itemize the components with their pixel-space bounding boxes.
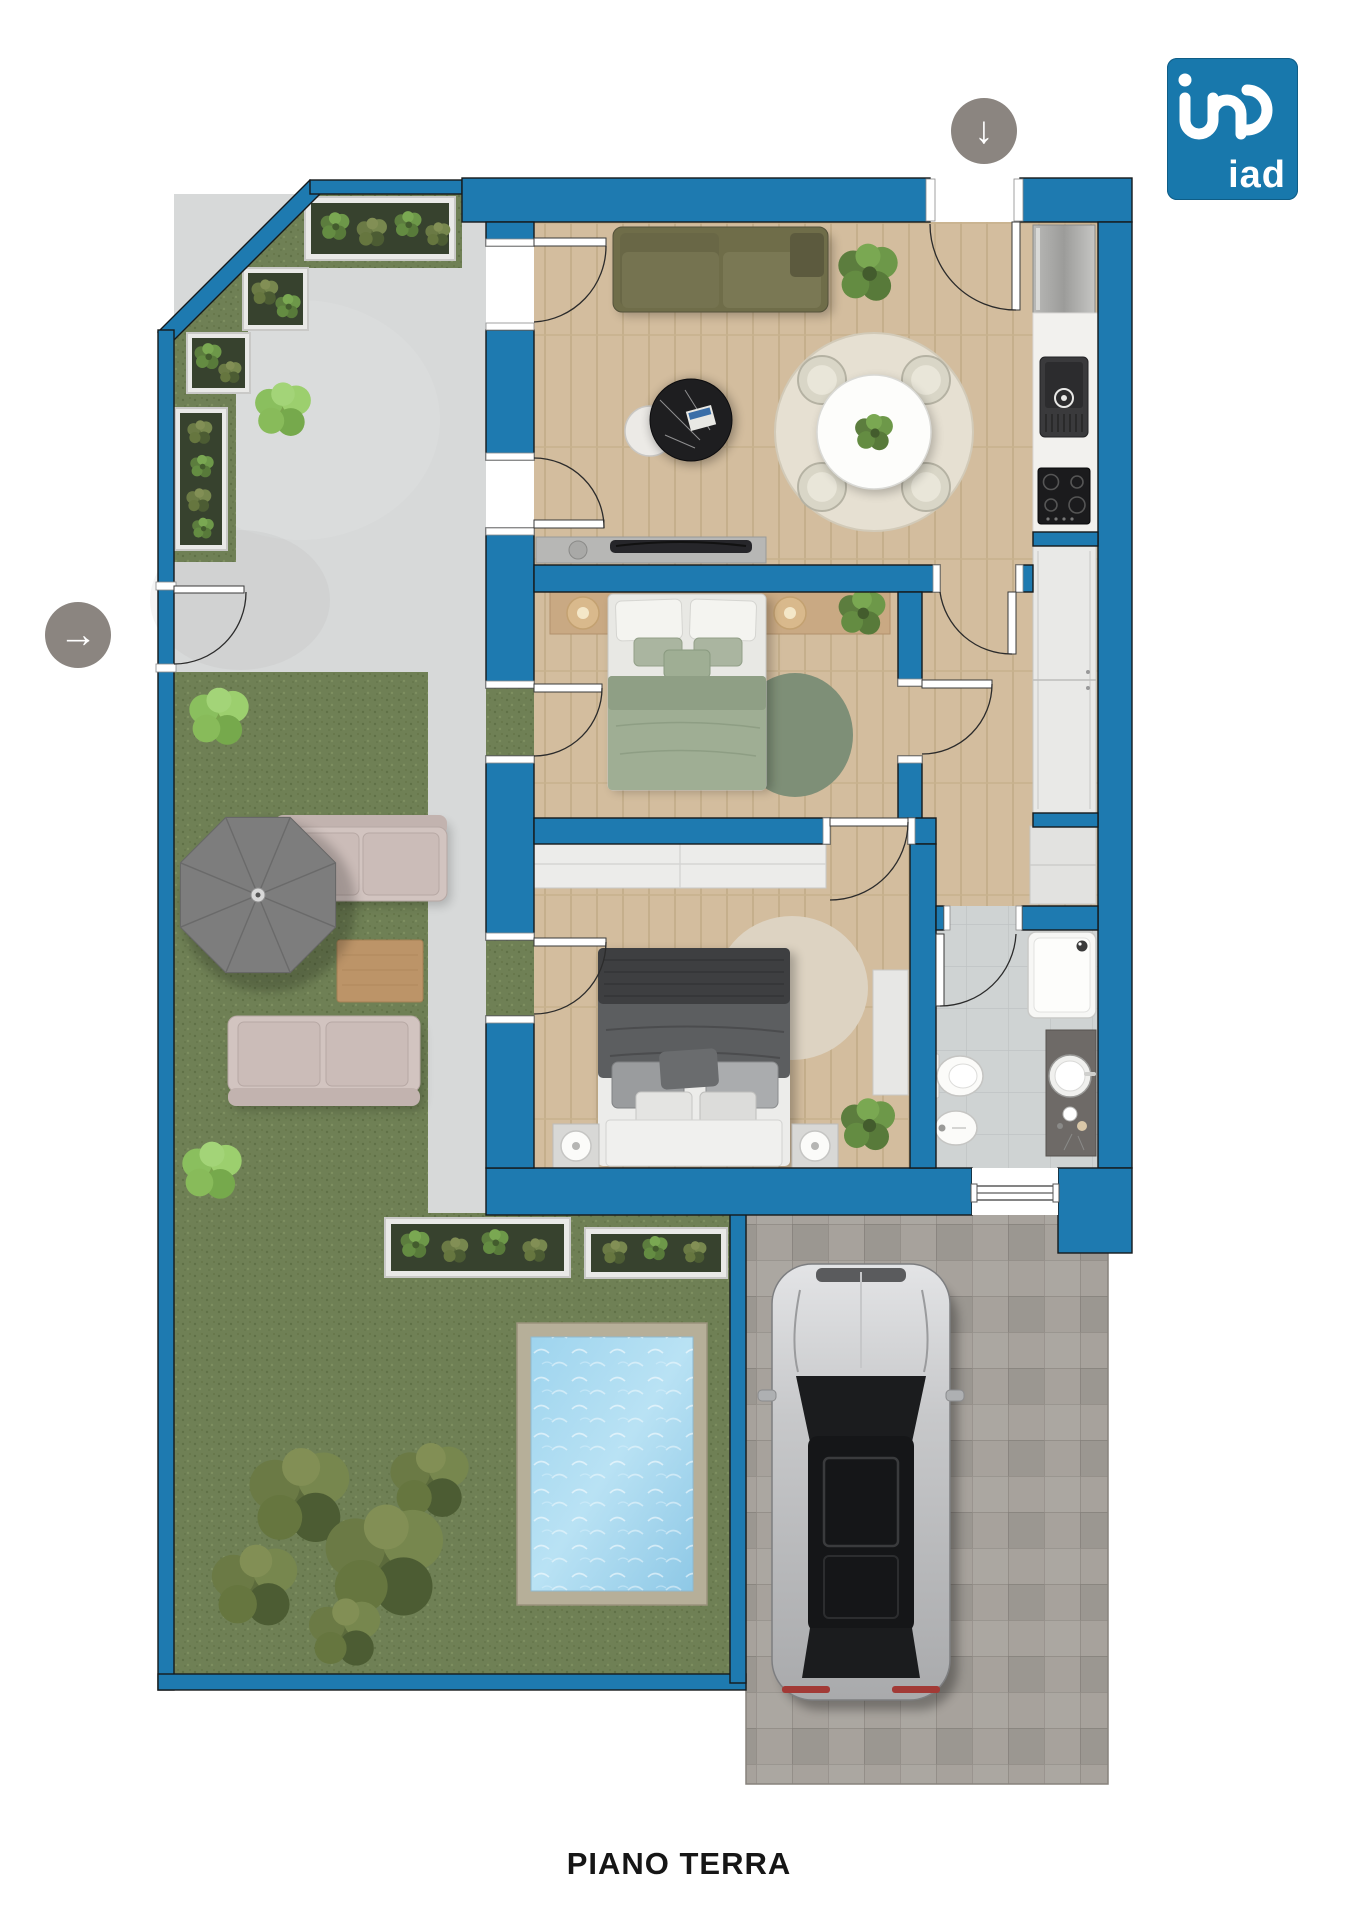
wall-right (1098, 222, 1132, 1168)
hallway (1030, 546, 1096, 904)
fridge (1033, 225, 1095, 313)
swimming-pool (517, 1323, 707, 1605)
wall-left-boundary (158, 330, 174, 1690)
floorplan-drawing (0, 0, 1358, 1920)
dining-set (775, 333, 973, 531)
planter-box-bottom-right (585, 1228, 727, 1278)
window-recess (971, 1168, 1059, 1215)
bedroom2-cabinet (873, 970, 908, 1095)
wall-bed2-north (534, 818, 830, 844)
car (758, 1264, 964, 1710)
shower (1028, 932, 1096, 1018)
garden-plant-1 (189, 688, 248, 745)
bedroom2-plant (841, 1098, 895, 1150)
planter-box-bottom-left (385, 1218, 570, 1277)
planter-box-2 (243, 268, 308, 330)
cooktop (1038, 468, 1090, 524)
table-plant (855, 414, 893, 450)
floorplan-page: iad ↓ → PIANO TERRA (0, 0, 1358, 1920)
wall-bath-west (910, 844, 936, 1168)
garden-plant-2 (182, 1142, 241, 1199)
wall-bed1-north (534, 565, 940, 592)
arrow-right-glyph: → (59, 616, 97, 654)
wall-bed1-east-a (898, 592, 922, 686)
coffee-table-black (650, 379, 736, 465)
patio-plant (255, 382, 311, 436)
outdoor-coffee-table (337, 940, 423, 1002)
tv-sideboard (536, 537, 766, 563)
arrow-right-icon: → (45, 602, 111, 668)
entrance-door-leaf (1012, 222, 1020, 310)
iad-logo-text: iad (1228, 156, 1286, 194)
wall-top-b (1020, 178, 1132, 222)
wall-bottom (486, 1168, 972, 1215)
wall-top-a (462, 178, 930, 222)
wall-bed1-east-b (898, 756, 922, 820)
bedroom2-wardrobe (532, 842, 826, 888)
planter-box-top (305, 197, 455, 260)
bed-green (608, 594, 772, 792)
wall-garden-bottom (158, 1674, 746, 1690)
floor-title: PIANO TERRA (0, 1846, 1358, 1882)
bed-dark (598, 948, 796, 1168)
planter-box-left (175, 408, 227, 550)
planter-box-3 (187, 333, 250, 393)
arrow-down-icon: ↓ (951, 98, 1017, 164)
iad-logo: iad (1167, 58, 1298, 200)
patio-path (428, 672, 486, 1213)
wall-bottom-right (1058, 1168, 1132, 1253)
living-plant (838, 244, 897, 301)
vanity-sink (1046, 1030, 1096, 1156)
arrow-down-glyph: ↓ (975, 112, 994, 150)
bedroom1-plant (839, 590, 886, 635)
wall-top-fence (310, 180, 462, 194)
iad-monogram-icon (1175, 68, 1290, 152)
outdoor-sofa-bottom (228, 1016, 424, 1111)
wall-bath-north (1022, 906, 1098, 930)
kitchen-sink (1040, 357, 1088, 437)
kitchen-column (1033, 225, 1098, 532)
wall-garden-east (730, 1213, 746, 1683)
sofa (613, 227, 833, 316)
bidet (935, 1111, 977, 1145)
